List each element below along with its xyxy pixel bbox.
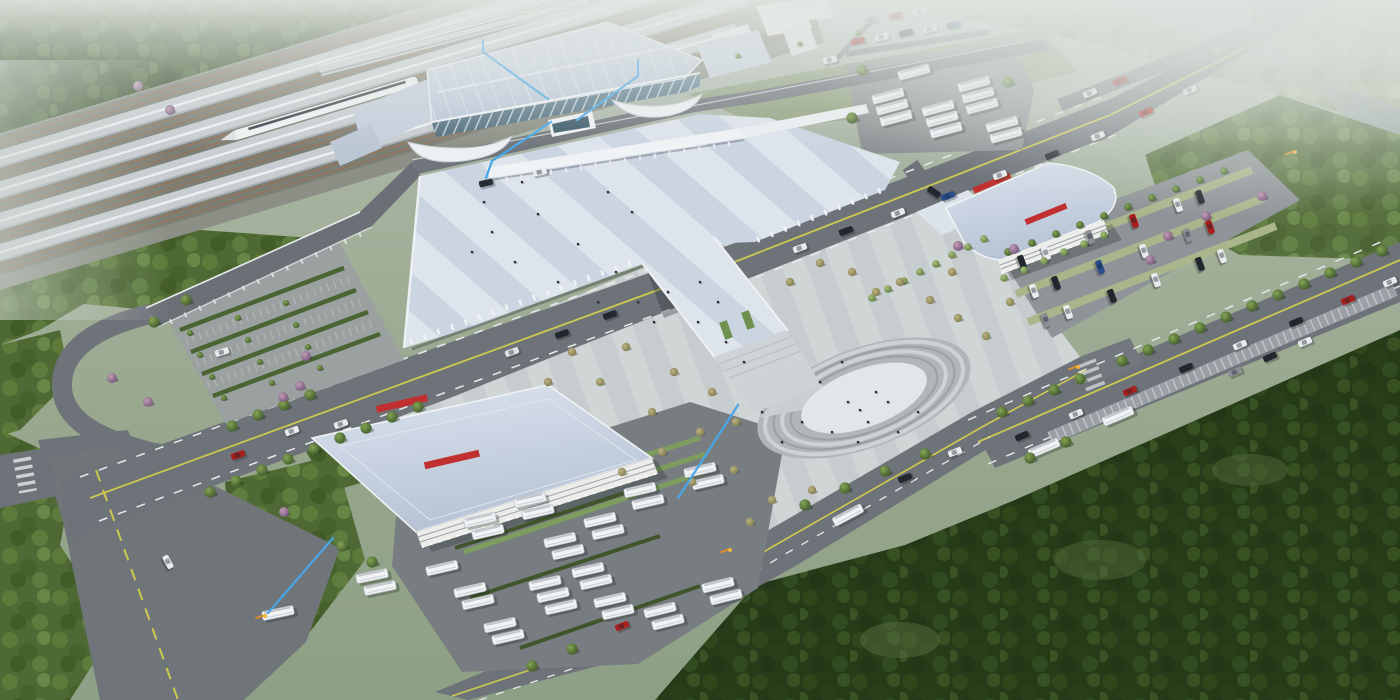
aerial-rendering [0, 0, 1400, 700]
station-aerial-scene [0, 0, 1400, 700]
